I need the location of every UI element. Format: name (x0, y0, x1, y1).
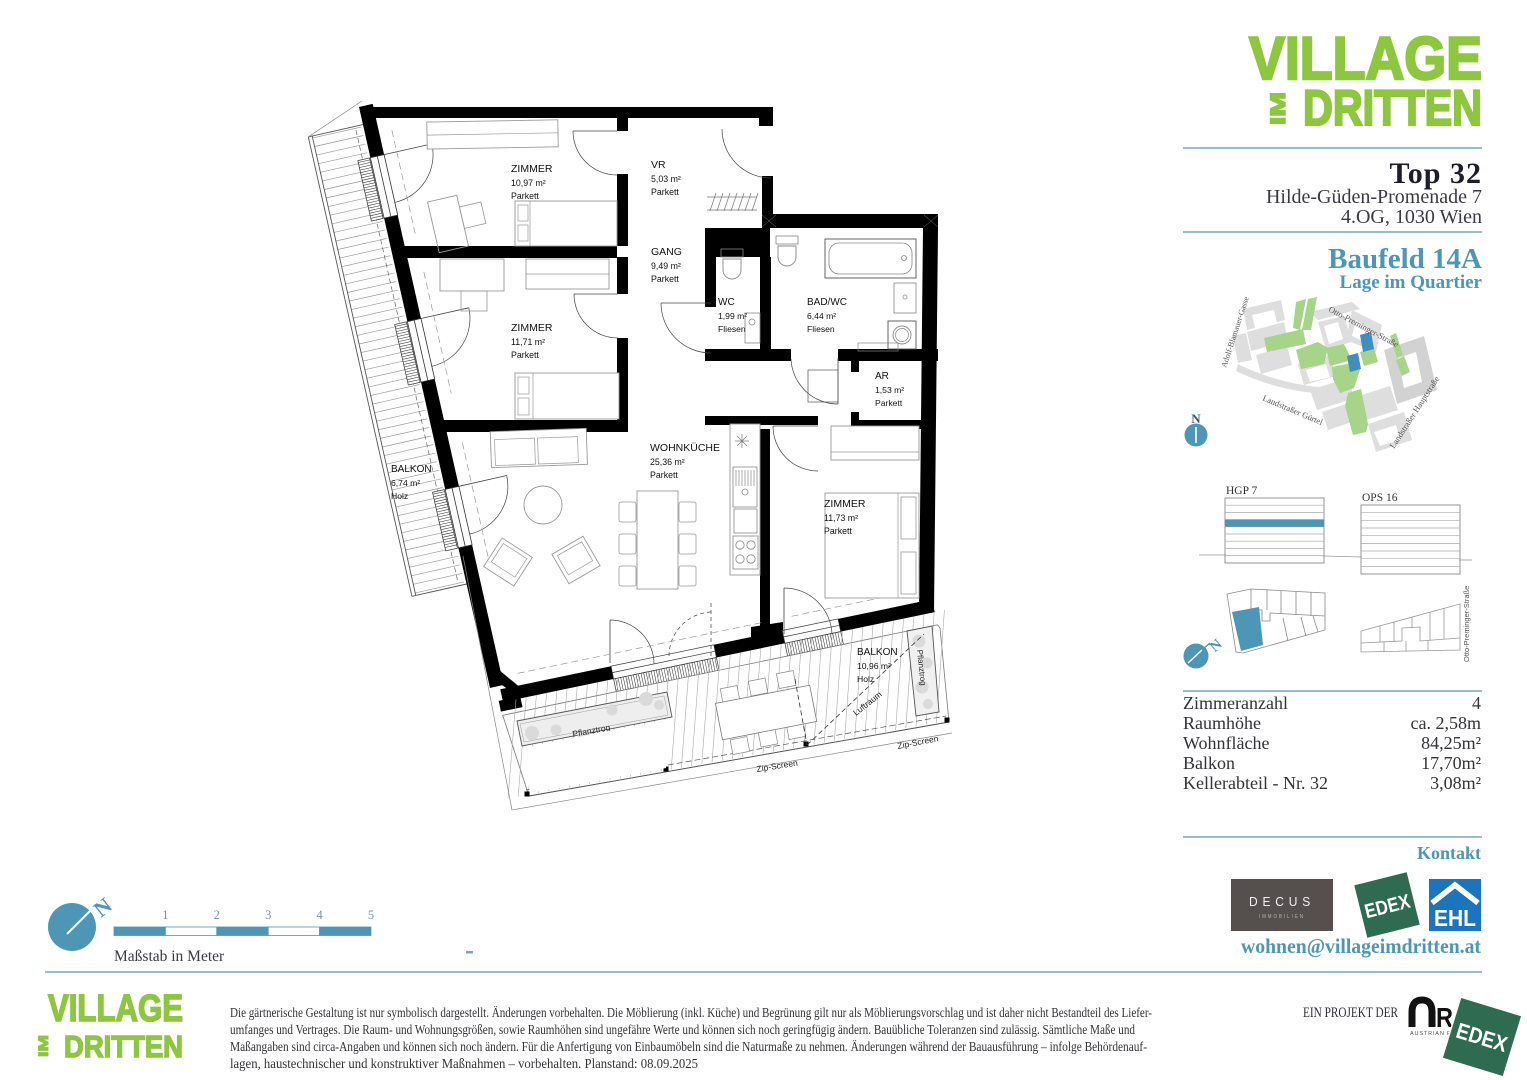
svg-text:10,96 m²: 10,96 m² (857, 661, 891, 671)
svg-text:DECUS: DECUS (1249, 895, 1315, 909)
svg-text:Raumhöhe: Raumhöhe (1183, 713, 1261, 733)
svg-text:1: 1 (162, 908, 168, 922)
svg-text:Parkett: Parkett (651, 274, 679, 284)
svg-text:6,74 m²: 6,74 m² (391, 478, 420, 488)
svg-text:DRITTEN: DRITTEN (1303, 80, 1482, 136)
svg-text:umfanges und Vertrages. Die Ra: umfanges und Vertrages. Die Raum- und Wo… (230, 1022, 1135, 1037)
svg-text:4: 4 (316, 908, 323, 922)
svg-text:11,71 m²: 11,71 m² (511, 337, 545, 347)
svg-text:AR: AR (875, 371, 889, 382)
svg-text:ca. 2,58m: ca. 2,58m (1411, 713, 1481, 733)
svg-text:IM: IM (36, 1035, 51, 1057)
svg-text:lagen, haustechnischer und kon: lagen, haustechnischer und konstruktiver… (230, 1056, 698, 1071)
svg-text:4.OG, 1030 Wien: 4.OG, 1030 Wien (1341, 206, 1482, 228)
svg-text:9,49 m²: 9,49 m² (651, 261, 681, 271)
svg-text:BAD/WC: BAD/WC (807, 297, 847, 308)
svg-text:VR: VR (651, 159, 666, 171)
svg-text:VILLAGE: VILLAGE (48, 988, 183, 1030)
svg-text:5,03 m²: 5,03 m² (651, 174, 681, 184)
svg-text:25,36 m²: 25,36 m² (650, 457, 685, 467)
svg-text:wohnen@villageimdritten.at: wohnen@villageimdritten.at (1241, 934, 1481, 958)
svg-text:N: N (1207, 636, 1226, 655)
svg-text:Maßstab in Meter: Maßstab in Meter (114, 948, 225, 965)
svg-text:Zimmeranzahl: Zimmeranzahl (1183, 693, 1288, 713)
svg-text:4: 4 (1472, 693, 1481, 713)
svg-text:1,99 m²: 1,99 m² (718, 311, 747, 321)
svg-text:GANG: GANG (651, 246, 682, 258)
svg-text:Holz: Holz (857, 674, 874, 684)
svg-text:EIN PROJEKT DER: EIN PROJEKT DER (1303, 1005, 1398, 1021)
svg-text:ZIMMER: ZIMMER (511, 163, 553, 175)
svg-text:IMMOBILIEN: IMMOBILIEN (1259, 914, 1305, 920)
svg-text:Die gärtnerische Gestaltung is: Die gärtnerische Gestaltung ist nur symb… (230, 1005, 1152, 1020)
svg-text:ZIMMER: ZIMMER (824, 498, 866, 510)
svg-text:5: 5 (368, 908, 374, 922)
svg-text:Zip-Screen: Zip-Screen (896, 733, 939, 751)
svg-text:3,08m²: 3,08m² (1430, 773, 1481, 793)
svg-text:Otto-Preminger-Straße: Otto-Preminger-Straße (1462, 586, 1471, 662)
svg-text:Fliesen: Fliesen (807, 324, 835, 334)
svg-text:11,73 m²: 11,73 m² (824, 513, 858, 523)
svg-text:N: N (1191, 411, 1201, 426)
svg-text:Kellerabteil - Nr. 32: Kellerabteil - Nr. 32 (1183, 773, 1328, 793)
svg-text:OPS 16: OPS 16 (1362, 492, 1398, 504)
svg-text:Fliesen: Fliesen (718, 324, 746, 334)
svg-text:Wohnfläche: Wohnfläche (1183, 733, 1270, 753)
svg-text:Parkett: Parkett (511, 191, 539, 201)
svg-text:Parkett: Parkett (824, 526, 852, 536)
svg-text:Lage im Quartier: Lage im Quartier (1340, 272, 1483, 293)
svg-text:BALKON: BALKON (857, 647, 898, 658)
svg-text:Parkett: Parkett (511, 350, 539, 360)
svg-text:Parkett: Parkett (875, 398, 903, 408)
svg-text:Zip-Screen: Zip-Screen (756, 758, 799, 774)
svg-text:6,44 m²: 6,44 m² (807, 311, 836, 321)
svg-text:Baufeld 14A: Baufeld 14A (1328, 243, 1482, 275)
svg-text:Kontakt: Kontakt (1417, 843, 1481, 863)
svg-text:Maßangaben sind circa-Angaben: Maßangaben sind circa-Angaben und können… (230, 1039, 1147, 1054)
svg-text:2: 2 (214, 908, 220, 922)
svg-text:WC: WC (718, 297, 735, 308)
svg-text:DRITTEN: DRITTEN (64, 1029, 183, 1064)
svg-text:EHL: EHL (1434, 905, 1476, 931)
svg-text:3: 3 (265, 908, 271, 922)
svg-text:BALKON: BALKON (391, 464, 432, 475)
svg-text:Hilde-Güden-Promenade 7: Hilde-Güden-Promenade 7 (1266, 186, 1482, 208)
svg-text:HGP 7: HGP 7 (1226, 485, 1257, 497)
svg-text:Balkon: Balkon (1183, 753, 1235, 773)
svg-text:Holz: Holz (391, 491, 408, 501)
svg-text:10,97 m²: 10,97 m² (511, 178, 546, 188)
svg-text:ZIMMER: ZIMMER (511, 322, 553, 334)
svg-text:84,25m²: 84,25m² (1421, 733, 1481, 753)
svg-text:1,53 m²: 1,53 m² (875, 385, 904, 395)
svg-text:WOHNKÜCHE: WOHNKÜCHE (650, 442, 720, 454)
svg-text:IM: IM (1267, 92, 1290, 125)
svg-text:Parkett: Parkett (650, 470, 678, 480)
svg-text:17,70m²: 17,70m² (1421, 753, 1481, 773)
svg-text:Parkett: Parkett (651, 187, 679, 197)
